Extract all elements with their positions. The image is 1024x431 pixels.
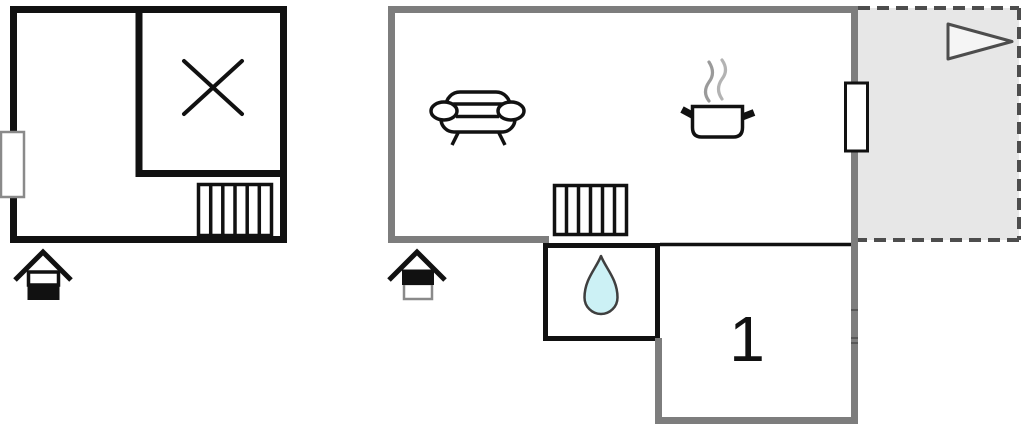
floor-plan-page: 1 — [0, 0, 1024, 431]
sofa-icon — [431, 92, 524, 145]
main-building: 1 — [388, 6, 1019, 424]
window — [846, 83, 868, 151]
window — [1, 132, 24, 197]
radiator-icon — [555, 186, 627, 235]
upper-floor-icon — [389, 252, 445, 299]
cross-mark-icon — [184, 61, 242, 114]
room-number-label: 1 — [729, 303, 765, 375]
ground-floor-icon — [15, 252, 71, 300]
radiator-icon — [199, 185, 272, 236]
cooking-pot-icon — [682, 60, 754, 137]
bedroom-1: 1 — [655, 245, 858, 425]
water-drop-icon — [585, 256, 618, 314]
annex-building — [1, 10, 284, 301]
steam-icon — [706, 60, 726, 101]
floor-plan-canvas: 1 — [0, 0, 1024, 431]
bathroom — [546, 246, 658, 339]
terrace-area — [856, 8, 1019, 240]
